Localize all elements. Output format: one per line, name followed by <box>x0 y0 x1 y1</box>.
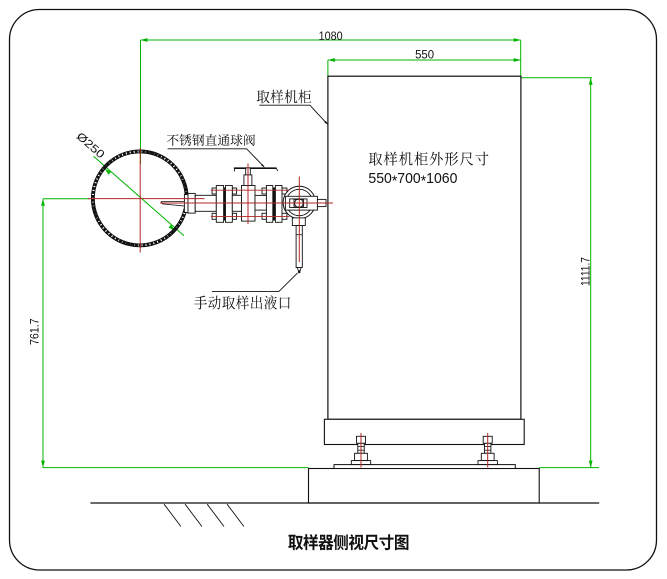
svg-text:550: 550 <box>415 48 434 62</box>
svg-text:1080: 1080 <box>319 29 343 43</box>
svg-text:550*700*1060: 550*700*1060 <box>368 171 457 190</box>
svg-text:1111.7: 1111.7 <box>579 257 593 286</box>
svg-text:761.7: 761.7 <box>27 318 41 345</box>
